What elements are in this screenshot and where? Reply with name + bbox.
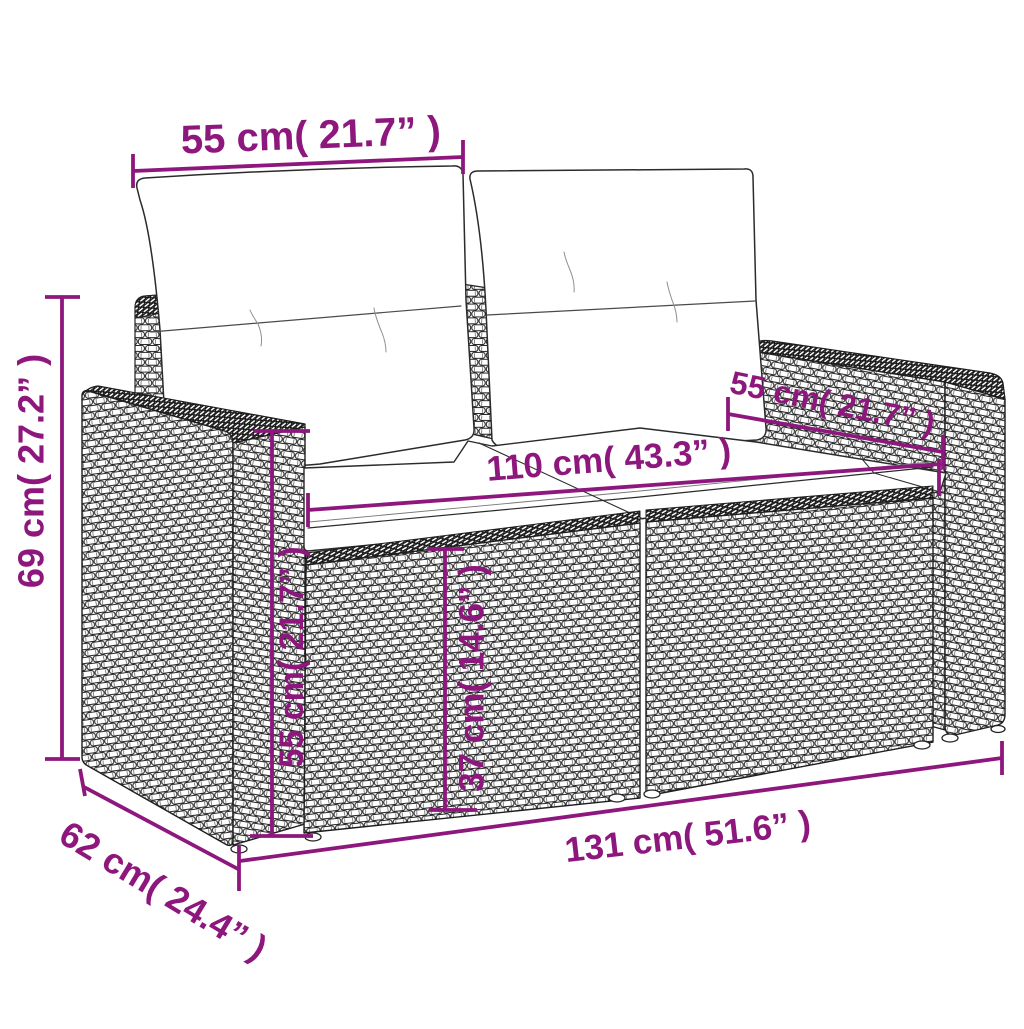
svg-text:69 cm( 27.2” ): 69 cm( 27.2” ) — [11, 354, 52, 588]
svg-text:55 cm( 21.7” ): 55 cm( 21.7” ) — [273, 546, 311, 767]
svg-text:37 cm( 14.6” ): 37 cm( 14.6” ) — [452, 564, 491, 792]
